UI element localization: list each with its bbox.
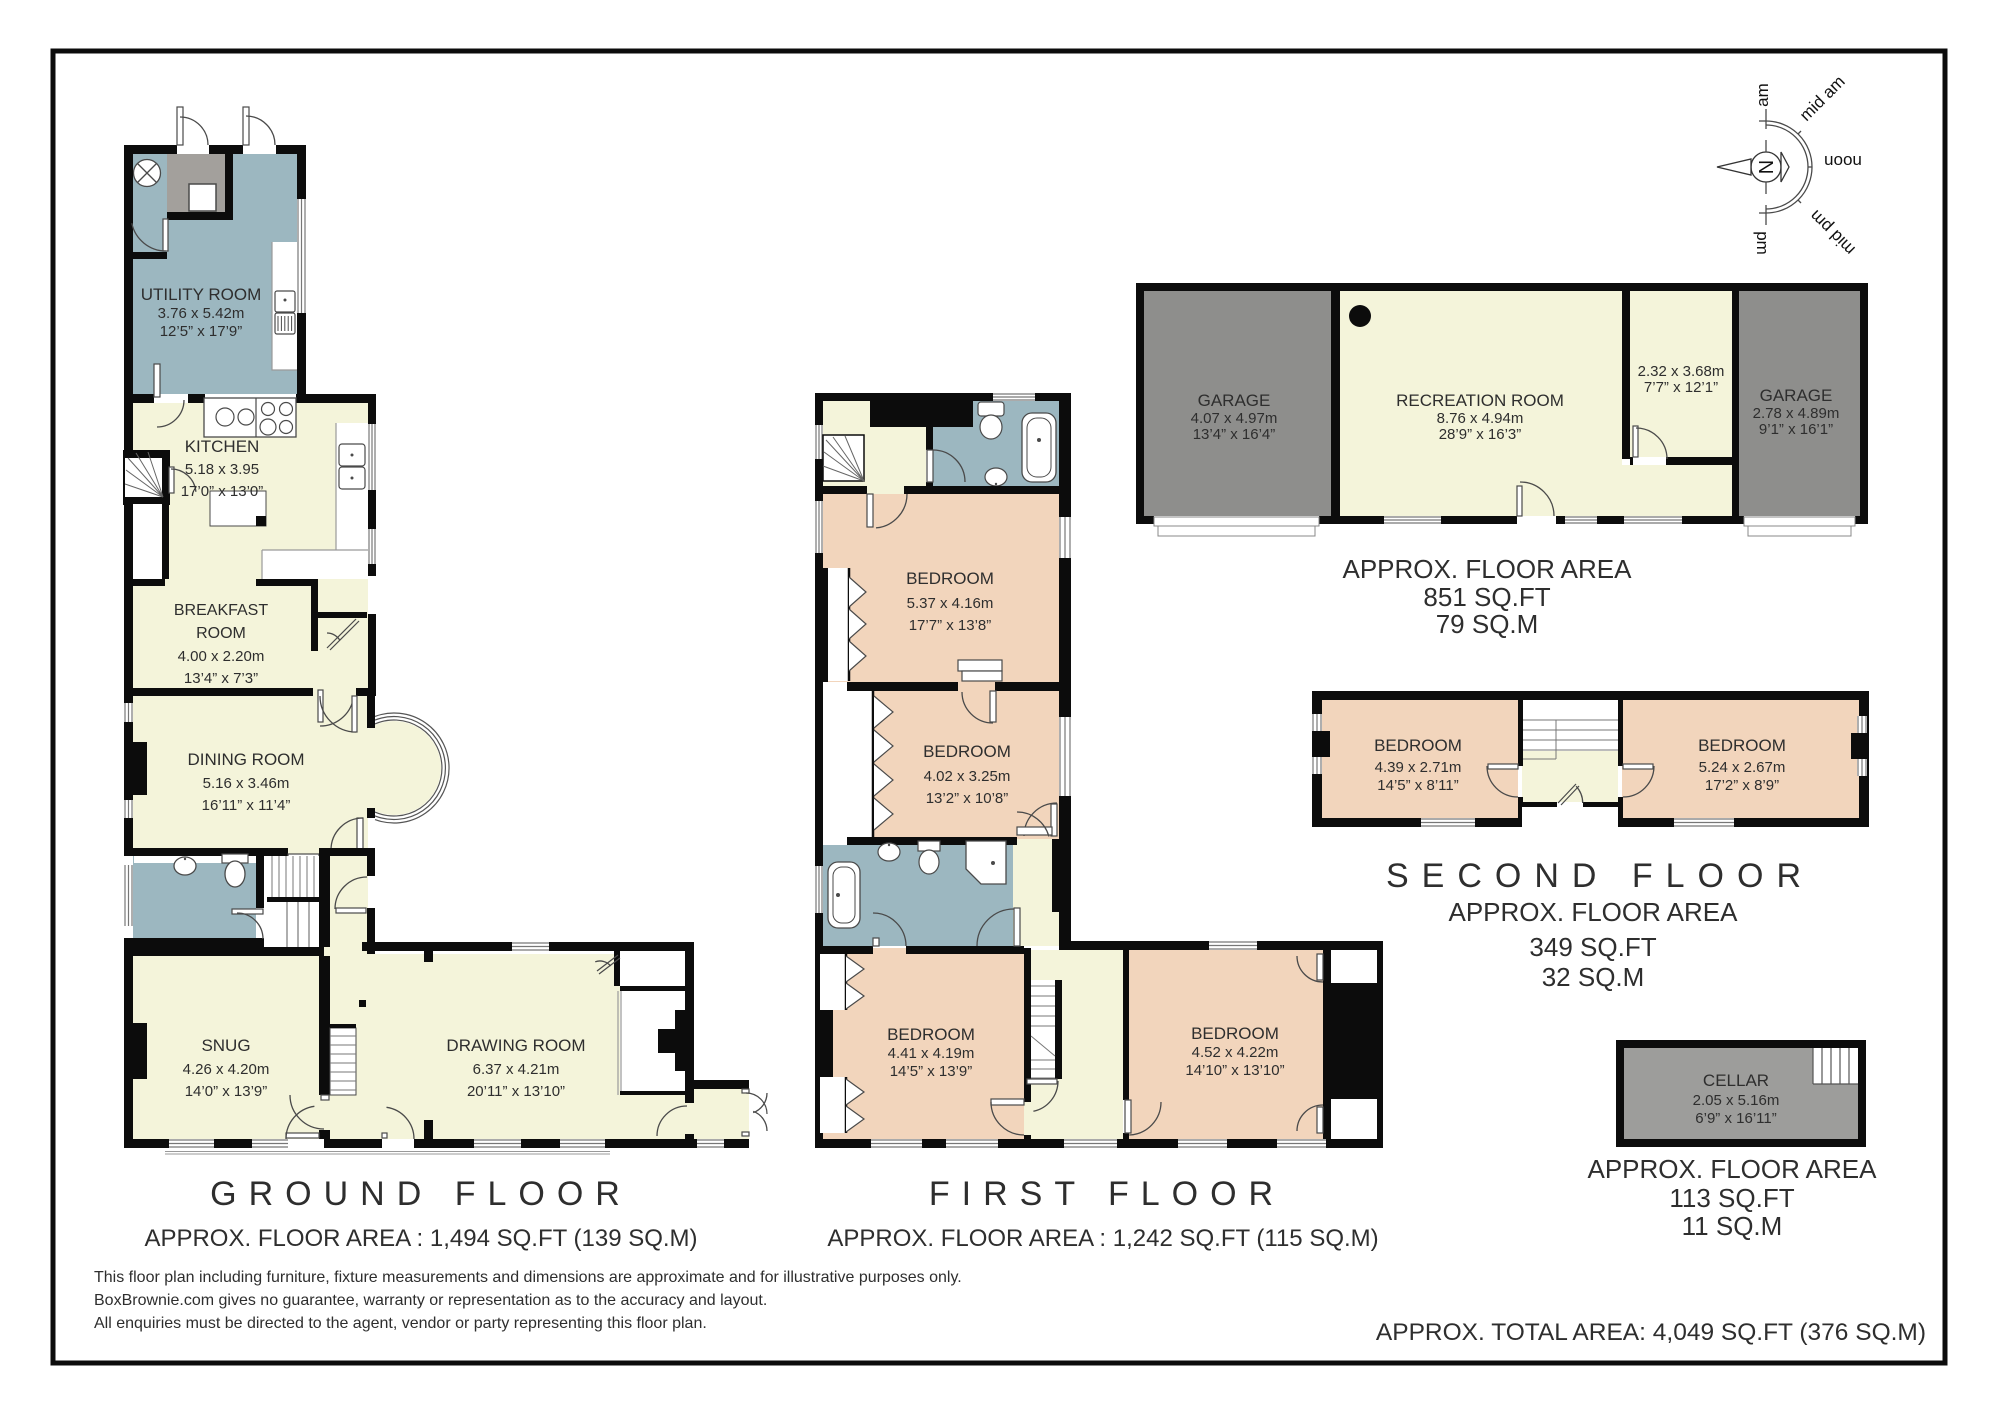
svg-text:GARAGE: GARAGE	[1198, 391, 1271, 410]
svg-text:4.41 x 4.19m: 4.41 x 4.19m	[888, 1045, 975, 1062]
svg-text:13’2” x 10’8”: 13’2” x 10’8”	[926, 790, 1009, 807]
svg-text:28’9” x 16’3”: 28’9” x 16’3”	[1439, 426, 1522, 443]
svg-text:UTILITY ROOM: UTILITY ROOM	[141, 285, 262, 304]
svg-text:BEDROOM: BEDROOM	[923, 742, 1011, 761]
svg-text:16’11” x 11’4”: 16’11” x 11’4”	[202, 797, 291, 814]
svg-text:14’0” x 13’9”: 14’0” x 13’9”	[185, 1083, 268, 1100]
svg-text:BEDROOM: BEDROOM	[906, 569, 994, 588]
svg-text:KITCHEN: KITCHEN	[185, 437, 260, 456]
svg-text:14’5” x 13’9”: 14’5” x 13’9”	[890, 1063, 973, 1080]
svg-text:2.05 x 5.16m: 2.05 x 5.16m	[1693, 1092, 1780, 1109]
svg-text:13’4” x 7’3”: 13’4” x 7’3”	[184, 670, 258, 687]
svg-text:4.00 x 2.20m: 4.00 x 2.20m	[178, 648, 265, 665]
svg-text:SNUG: SNUG	[201, 1036, 250, 1055]
svg-text:DRAWING ROOM: DRAWING ROOM	[446, 1036, 585, 1055]
svg-text:20’11” x 13’10”: 20’11” x 13’10”	[467, 1083, 565, 1100]
svg-text:noon: noon	[1824, 152, 1862, 171]
svg-text:ROOM: ROOM	[196, 625, 246, 642]
svg-text:All enquiries must be directed: All enquiries must be directed to the ag…	[94, 1315, 707, 1332]
svg-text:6.37 x 4.21m: 6.37 x 4.21m	[473, 1061, 560, 1078]
svg-text:7’7” x 12’1”: 7’7” x 12’1”	[1644, 379, 1718, 396]
svg-text:am: am	[1753, 83, 1772, 107]
svg-text:APPROX. FLOOR AREA : 1,242 SQ.: APPROX. FLOOR AREA : 1,242 SQ.FT (115 SQ…	[827, 1225, 1378, 1252]
svg-text:4.52 x 4.22m: 4.52 x 4.22m	[1192, 1044, 1279, 1061]
svg-text:4.39 x 2.71m: 4.39 x 2.71m	[1375, 759, 1462, 776]
svg-text:851 SQ.FT: 851 SQ.FT	[1423, 582, 1550, 612]
svg-text:BREAKFAST: BREAKFAST	[174, 602, 268, 619]
svg-text:4.26 x 4.20m: 4.26 x 4.20m	[183, 1061, 270, 1078]
svg-text:3.76 x 5.42m: 3.76 x 5.42m	[158, 305, 245, 322]
svg-text:GROUND FLOOR: GROUND FLOOR	[210, 1175, 632, 1213]
svg-text:2.32 x 3.68m: 2.32 x 3.68m	[1638, 363, 1725, 380]
svg-text:13’4” x 16’4”: 13’4” x 16’4”	[1193, 426, 1276, 443]
svg-text:pm: pm	[1753, 231, 1772, 255]
svg-text:APPROX. FLOOR AREA : 1,494 SQ.: APPROX. FLOOR AREA : 1,494 SQ.FT (139 SQ…	[144, 1225, 697, 1252]
svg-text:17’2” x 8’9”: 17’2” x 8’9”	[1705, 777, 1779, 794]
svg-text:This floor plan including furn: This floor plan including furniture, fix…	[94, 1269, 962, 1286]
svg-text:5.18 x 3.95: 5.18 x 3.95	[185, 461, 259, 478]
svg-text:CELLAR: CELLAR	[1703, 1071, 1769, 1090]
svg-text:N: N	[1756, 160, 1778, 174]
svg-text:BoxBrownie.com gives no guaran: BoxBrownie.com gives no guarantee, warra…	[94, 1292, 767, 1309]
svg-text:5.24 x 2.67m: 5.24 x 2.67m	[1699, 759, 1786, 776]
svg-text:11 SQ.M: 11 SQ.M	[1682, 1211, 1783, 1241]
svg-text:8.76 x 4.94m: 8.76 x 4.94m	[1437, 410, 1524, 427]
svg-text:4.07 x 4.97m: 4.07 x 4.97m	[1191, 410, 1278, 427]
svg-text:32 SQ.M: 32 SQ.M	[1542, 962, 1645, 992]
svg-text:SECOND FLOOR: SECOND FLOOR	[1386, 857, 1814, 895]
svg-text:17’7” x 13’8”: 17’7” x 13’8”	[909, 617, 992, 634]
svg-text:5.16 x 3.46m: 5.16 x 3.46m	[203, 775, 290, 792]
svg-text:DINING ROOM: DINING ROOM	[187, 750, 304, 769]
svg-text:6’9” x 16’11”: 6’9” x 16’11”	[1695, 1110, 1776, 1127]
svg-text:BEDROOM: BEDROOM	[887, 1025, 975, 1044]
svg-text:APPROX. FLOOR AREA: APPROX. FLOOR AREA	[1449, 897, 1739, 927]
svg-text:GARAGE: GARAGE	[1760, 386, 1833, 405]
svg-text:5.37 x 4.16m: 5.37 x 4.16m	[907, 595, 994, 612]
svg-text:FIRST FLOOR: FIRST FLOOR	[929, 1175, 1285, 1213]
svg-text:2.78 x 4.89m: 2.78 x 4.89m	[1753, 405, 1840, 422]
svg-text:14’5” x 8’11”: 14’5” x 8’11”	[1377, 777, 1458, 794]
svg-text:BEDROOM: BEDROOM	[1374, 736, 1462, 755]
svg-text:BEDROOM: BEDROOM	[1698, 736, 1786, 755]
svg-text:APPROX. FLOOR AREA: APPROX. FLOOR AREA	[1588, 1154, 1878, 1184]
svg-text:113 SQ.FT: 113 SQ.FT	[1669, 1183, 1794, 1213]
svg-text:79 SQ.M: 79 SQ.M	[1436, 609, 1539, 639]
svg-text:APPROX. TOTAL AREA: 4,049 SQ.F: APPROX. TOTAL AREA: 4,049 SQ.FT (376 SQ.…	[1376, 1319, 1926, 1346]
svg-text:BEDROOM: BEDROOM	[1191, 1024, 1279, 1043]
svg-text:349 SQ.FT: 349 SQ.FT	[1529, 932, 1656, 962]
svg-text:17’0” x 13’0”: 17’0” x 13’0”	[181, 483, 264, 500]
svg-text:4.02 x 3.25m: 4.02 x 3.25m	[924, 768, 1011, 785]
svg-text:12’5” x 17’9”: 12’5” x 17’9”	[160, 323, 243, 340]
svg-text:9’1” x 16’1”: 9’1” x 16’1”	[1759, 421, 1833, 438]
svg-text:14’10” x 13’10”: 14’10” x 13’10”	[1185, 1062, 1284, 1079]
svg-text:APPROX. FLOOR AREA: APPROX. FLOOR AREA	[1343, 554, 1633, 584]
svg-text:RECREATION ROOM: RECREATION ROOM	[1396, 391, 1564, 410]
